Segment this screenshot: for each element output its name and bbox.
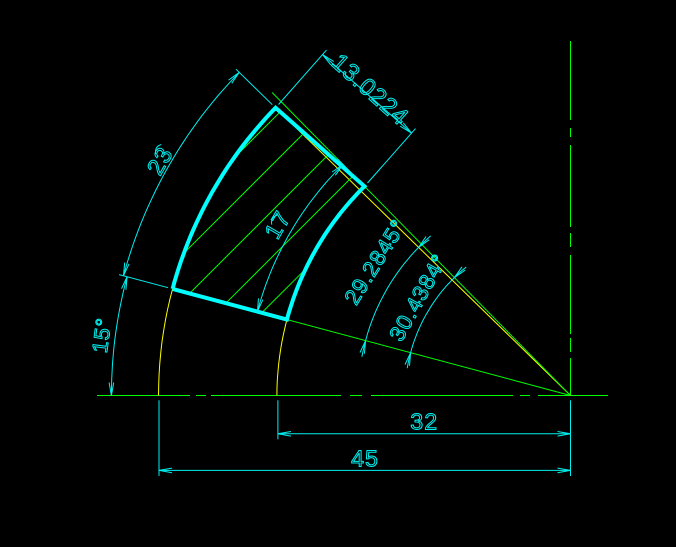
svg-text:45: 45 — [351, 446, 379, 472]
svg-text:15°: 15° — [88, 316, 116, 354]
svg-text:32: 32 — [410, 409, 438, 435]
